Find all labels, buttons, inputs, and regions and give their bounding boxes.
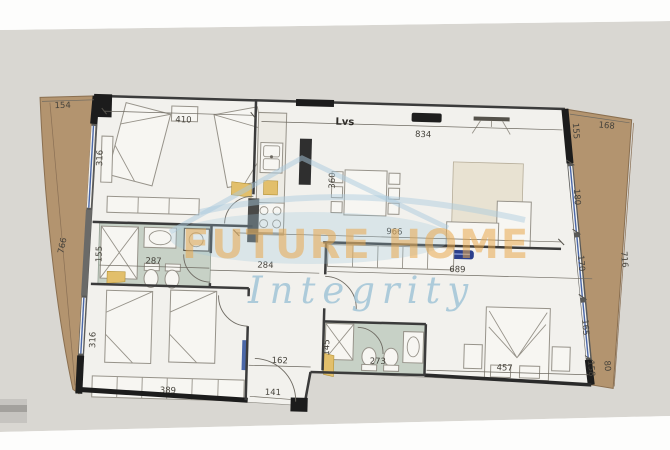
dim-right-balcony-length: 716 bbox=[618, 251, 629, 268]
dim-bedroom1-depth: 316 bbox=[95, 150, 105, 167]
living-room-label: Lvs bbox=[335, 117, 354, 129]
nightstand-icon bbox=[552, 347, 571, 371]
dim-right-seg2: 180 bbox=[571, 189, 582, 206]
floor-plan-photo: 410 834 316 154 766 360 966 689 284 287 … bbox=[0, 0, 670, 450]
entry-column bbox=[290, 397, 307, 411]
dim-entry-door: 141 bbox=[265, 388, 282, 398]
dresser-icon bbox=[107, 196, 199, 215]
dim-right-balcony-top: 168 bbox=[598, 120, 615, 132]
watermark-tagline: Integrity bbox=[247, 269, 475, 312]
single-bed-icon bbox=[169, 290, 217, 363]
dim-bedroom1-width: 410 bbox=[175, 115, 192, 125]
door-leaf bbox=[107, 271, 125, 283]
chair-icon bbox=[389, 173, 400, 184]
dim-living-top: 834 bbox=[415, 130, 432, 140]
watermark-brand: FUTURE HOME bbox=[182, 222, 530, 268]
dim-right-seg4: 165 bbox=[579, 319, 590, 336]
nightstand-icon bbox=[464, 344, 483, 368]
paper-scrap-edge bbox=[0, 405, 27, 412]
dim-right-seg3: 170 bbox=[575, 255, 586, 272]
dim-right-seg5: 158 bbox=[585, 360, 596, 377]
dim-bedroom2-width: 389 bbox=[160, 386, 177, 396]
floor-plan-canvas: 410 834 316 154 766 360 966 689 284 287 … bbox=[0, 0, 670, 450]
column bbox=[94, 94, 113, 117]
dim-bath1-width: 287 bbox=[145, 256, 162, 266]
dim-left-balcony-width: 154 bbox=[54, 101, 70, 111]
tv-icon bbox=[412, 113, 442, 123]
lintel bbox=[296, 99, 334, 107]
single-bed-icon bbox=[105, 290, 153, 363]
bathroom-sink-icon bbox=[403, 332, 424, 364]
pillow bbox=[519, 366, 539, 379]
shower-icon bbox=[100, 226, 138, 279]
dim-right-seg1: 155 bbox=[570, 123, 581, 140]
door-leaf bbox=[263, 181, 277, 195]
dim-bath1-shower: 155 bbox=[94, 246, 104, 263]
dim-master-room-width: 457 bbox=[496, 363, 513, 373]
dim-hall2-width: 162 bbox=[272, 356, 289, 366]
chair-icon bbox=[331, 201, 342, 212]
dim-right-balcony-bottom: 80 bbox=[601, 360, 612, 372]
dim-bath2-shower: 145 bbox=[322, 339, 332, 356]
dim-bath2-width: 273 bbox=[370, 357, 387, 367]
dim-bedroom2-depth: 316 bbox=[88, 332, 98, 349]
